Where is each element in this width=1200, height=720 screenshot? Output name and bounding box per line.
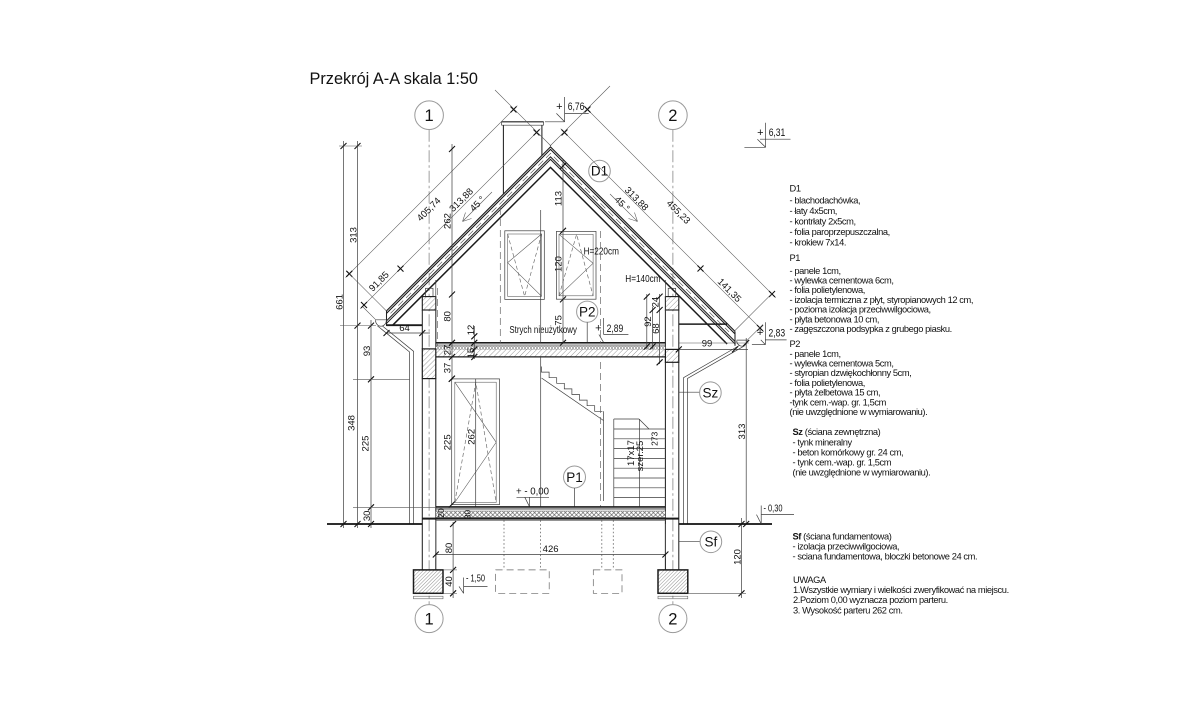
svg-text:- zagęszczona podsypka z grube: - zagęszczona podsypka z grubego piasku. (790, 324, 952, 334)
svg-text:Sf: Sf (705, 535, 718, 550)
svg-text:1.Wszystkie wymiary i wielkośc: 1.Wszystkie wymiary i wielkości zweryfik… (793, 585, 1009, 595)
svg-text:2,83: 2,83 (769, 327, 786, 339)
svg-text:120: 120 (732, 549, 743, 565)
svg-text:- tynk cem.-wap. gr. 1,5cm: - tynk cem.-wap. gr. 1,5cm (793, 458, 892, 468)
svg-text:313: 313 (737, 424, 748, 440)
svg-text:20: 20 (436, 508, 446, 518)
svg-text:2: 2 (668, 107, 677, 125)
svg-text:2.Poziom 0,00 wyznacza poziom: 2.Poziom 0,00 wyznacza poziom parteru. (793, 595, 948, 605)
svg-text:141,35: 141,35 (715, 276, 743, 304)
svg-text:- 0,30: - 0,30 (764, 502, 783, 514)
svg-text:- sciana fundamentowa, bloczki: - sciana fundamentowa, bloczki betonowe … (793, 552, 978, 562)
svg-text:H=140cm: H=140cm (625, 273, 660, 285)
svg-text:(nie uwzględnione w wymiarowan: (nie uwzględnione w wymiarowaniu). (790, 407, 928, 417)
svg-text:- tynk mineralny: - tynk mineralny (793, 437, 853, 447)
svg-text:- beton komórkowy gr. 24 cm,: - beton komórkowy gr. 24 cm, (793, 447, 904, 457)
svg-text:- blachodachówka,: - blachodachówka, (790, 196, 861, 206)
svg-text:- folia paroprzepuszczalna,: - folia paroprzepuszczalna, (790, 227, 890, 237)
svg-text:- pozioma izolacja przeciwwilg: - pozioma izolacja przeciwwilgociowa, (790, 305, 931, 315)
svg-text:1: 1 (425, 107, 434, 125)
svg-text:+: + (757, 127, 763, 139)
svg-text:6,31: 6,31 (769, 127, 786, 139)
svg-text:Strych nieużytkowy: Strych nieużytkowy (509, 324, 577, 336)
svg-text:-tynk cem.-wap. gr. 1,5cm: -tynk cem.-wap. gr. 1,5cm (790, 397, 887, 407)
svg-text:64: 64 (399, 323, 410, 334)
svg-text:262: 262 (467, 429, 478, 445)
svg-text:661: 661 (334, 294, 345, 310)
svg-text:P1: P1 (566, 470, 583, 485)
svg-text:- łaty 4x5cm,: - łaty 4x5cm, (790, 206, 838, 216)
svg-text:- wylewka cementowa 5cm,: - wylewka cementowa 5cm, (790, 359, 894, 369)
svg-text:37: 37 (443, 363, 454, 374)
svg-text:P2: P2 (579, 304, 596, 319)
svg-text:Sz: Sz (703, 385, 719, 400)
svg-text:225: 225 (443, 434, 454, 450)
svg-text:Przekrój A-A skala 1:50: Przekrój A-A skala 1:50 (310, 69, 479, 88)
svg-text:Sf (ściana fundamentowa): Sf (ściana fundamentowa) (793, 532, 892, 542)
svg-text:2,89: 2,89 (607, 323, 624, 335)
svg-text:D1: D1 (591, 164, 608, 179)
svg-text:15: 15 (466, 348, 477, 359)
svg-text:455,23: 455,23 (664, 198, 692, 226)
svg-text:- izolacja termiczna z płyt, s: - izolacja termiczna z płyt, styropianow… (790, 295, 974, 305)
svg-text:426: 426 (543, 544, 559, 555)
svg-text:24: 24 (650, 297, 661, 308)
svg-text:91,85: 91,85 (367, 270, 392, 295)
svg-text:27: 27 (443, 345, 454, 356)
svg-text:99: 99 (702, 339, 713, 350)
svg-text:80: 80 (443, 311, 454, 322)
svg-text:3. Wysokość parteru 262 cm.: 3. Wysokość parteru 262 cm. (793, 605, 903, 615)
svg-text:12: 12 (466, 325, 477, 336)
svg-text:93: 93 (362, 346, 373, 357)
svg-text:262: 262 (443, 213, 454, 229)
svg-text:P1: P1 (790, 253, 801, 263)
svg-text:- wylewka cementowa 6cm,: - wylewka cementowa 6cm, (790, 276, 894, 286)
svg-text:D1: D1 (790, 184, 801, 194)
svg-text:1: 1 (425, 611, 434, 629)
svg-text:UWAGA: UWAGA (793, 575, 827, 585)
svg-text:Sz (ściana zewnętrzna): Sz (ściana zewnętrzna) (793, 427, 881, 437)
svg-text:40: 40 (444, 576, 455, 587)
svg-text:H=220cm: H=220cm (584, 246, 619, 258)
svg-text:- folia polietylenowa,: - folia polietylenowa, (790, 285, 865, 295)
svg-text:+ - 0,00: + - 0,00 (516, 486, 549, 498)
svg-text:68: 68 (651, 323, 662, 334)
svg-text:+: + (556, 101, 562, 113)
svg-text:P2: P2 (790, 339, 801, 349)
svg-text:- panele 1cm,: - panele 1cm, (790, 266, 841, 276)
svg-text:- kontrłaty 2x5cm,: - kontrłaty 2x5cm, (790, 217, 856, 227)
svg-text:- 1,50: - 1,50 (466, 573, 485, 585)
svg-text:348: 348 (346, 415, 357, 431)
svg-text:30: 30 (463, 510, 473, 520)
svg-text:225: 225 (361, 436, 372, 452)
svg-text:- panele 1cm,: - panele 1cm, (790, 349, 841, 359)
svg-text:273: 273 (650, 431, 660, 445)
svg-text:6,76: 6,76 (568, 101, 585, 113)
svg-text:szer.25: szer.25 (635, 441, 646, 472)
svg-text:+: + (757, 327, 763, 339)
svg-text:- płyta żelbetowa 15 cm,: - płyta żelbetowa 15 cm, (790, 388, 881, 398)
svg-text:- folia polietylenowa,: - folia polietylenowa, (790, 378, 865, 388)
svg-text:30: 30 (362, 511, 373, 522)
svg-text:- izolacja przeciwwilgociowa,: - izolacja przeciwwilgociowa, (793, 542, 900, 552)
svg-text:2: 2 (668, 611, 677, 629)
svg-text:(nie uwzględnione w wymiarowan: (nie uwzględnione w wymiarowaniu). (793, 468, 931, 478)
svg-text:80: 80 (444, 543, 455, 554)
svg-text:113: 113 (553, 191, 564, 206)
svg-text:- krokiew 7x14.: - krokiew 7x14. (790, 238, 847, 248)
svg-text:- styropian dzwiękochłonny 5cm: - styropian dzwiękochłonny 5cm, (790, 368, 912, 378)
svg-text:313: 313 (348, 227, 359, 243)
svg-text:- płyta betonowa 10 cm,: - płyta betonowa 10 cm, (790, 314, 880, 324)
